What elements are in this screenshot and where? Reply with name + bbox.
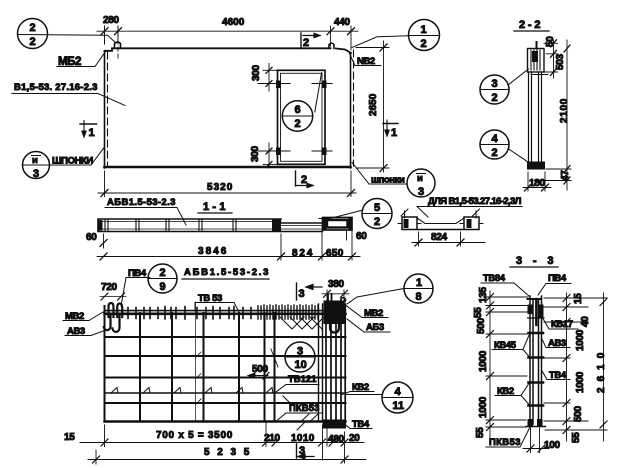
svg-text:650: 650 xyxy=(326,248,344,259)
svg-text:5: 5 xyxy=(374,202,380,214)
svg-text:503: 503 xyxy=(555,53,566,70)
svg-text:210: 210 xyxy=(264,433,281,444)
svg-text:2: 2 xyxy=(160,267,166,279)
svg-text:440: 440 xyxy=(334,17,351,28)
svg-text:500: 500 xyxy=(573,405,584,422)
svg-text:2: 2 xyxy=(303,37,309,49)
svg-text:ПВ4: ПВ4 xyxy=(548,273,567,284)
svg-text:КВ17: КВ17 xyxy=(551,319,573,330)
svg-text:47: 47 xyxy=(560,170,571,181)
svg-text:2: 2 xyxy=(30,36,36,48)
svg-text:9: 9 xyxy=(160,281,166,293)
svg-text:2650: 2650 xyxy=(368,93,379,116)
svg-text:1: 1 xyxy=(421,24,427,36)
svg-text:6: 6 xyxy=(295,104,301,116)
svg-text:и: и xyxy=(32,155,38,166)
svg-text:700 х 5 = 3500: 700 х 5 = 3500 xyxy=(156,430,233,441)
svg-text:1000: 1000 xyxy=(575,371,586,393)
svg-text:60: 60 xyxy=(86,232,97,243)
svg-text:1: 1 xyxy=(391,127,397,139)
svg-text:50: 50 xyxy=(545,36,556,47)
svg-text:2: 2 xyxy=(492,92,498,104)
svg-text:3846: 3846 xyxy=(198,246,227,257)
svg-text:60: 60 xyxy=(356,231,367,242)
svg-text:480: 480 xyxy=(328,434,345,445)
svg-text:40: 40 xyxy=(580,316,591,327)
svg-text:15: 15 xyxy=(573,293,584,304)
svg-text:1: 1 xyxy=(89,127,95,139)
svg-text:1010: 1010 xyxy=(291,433,315,444)
svg-text:В1,5-53. 27.16-2.3: В1,5-53. 27.16-2.3 xyxy=(14,82,97,93)
svg-text:3: 3 xyxy=(492,78,498,90)
svg-text:АБВ1.5-53-2.3: АБВ1.5-53-2.3 xyxy=(107,197,175,208)
svg-text:824: 824 xyxy=(431,232,448,243)
svg-text:ДЛЯ В1,5-53.27.16-2,3Л: ДЛЯ В1,5-53.27.16-2,3Л xyxy=(428,196,522,207)
svg-text:3: 3 xyxy=(299,288,305,300)
svg-text:824: 824 xyxy=(292,248,313,259)
svg-text:5320: 5320 xyxy=(207,182,233,193)
svg-text:3: 3 xyxy=(33,168,39,180)
svg-text:1: 1 xyxy=(416,277,422,289)
svg-text:3-3: 3-3 xyxy=(516,255,554,267)
svg-text:2: 2 xyxy=(295,118,301,130)
svg-text:15: 15 xyxy=(64,432,75,443)
svg-text:2: 2 xyxy=(492,147,498,159)
svg-text:1-1: 1-1 xyxy=(203,201,226,213)
svg-text:2: 2 xyxy=(374,216,380,228)
svg-text:55: 55 xyxy=(475,427,486,438)
svg-text:3: 3 xyxy=(297,346,303,358)
svg-text:300: 300 xyxy=(251,64,262,81)
svg-text:720: 720 xyxy=(101,282,118,293)
svg-text:2-2: 2-2 xyxy=(519,19,541,31)
svg-text:280: 280 xyxy=(103,15,120,26)
svg-text:1000: 1000 xyxy=(575,329,586,351)
svg-text:1000: 1000 xyxy=(478,350,489,372)
svg-text:3: 3 xyxy=(418,186,424,198)
svg-text:АБ3: АБ3 xyxy=(366,322,384,333)
svg-text:ТВ121: ТВ121 xyxy=(288,374,317,385)
svg-text:2: 2 xyxy=(30,22,36,34)
svg-text:1000: 1000 xyxy=(478,396,489,418)
svg-text:20: 20 xyxy=(349,433,360,444)
svg-text:ТВ84: ТВ84 xyxy=(483,273,506,284)
svg-text:ПКВ53: ПКВ53 xyxy=(489,437,520,448)
svg-text:55: 55 xyxy=(473,307,484,318)
svg-text:10: 10 xyxy=(295,359,307,371)
svg-text:2100: 2100 xyxy=(559,98,570,123)
svg-text:4: 4 xyxy=(492,133,499,145)
svg-text:380: 380 xyxy=(328,279,345,290)
svg-text:135: 135 xyxy=(478,286,489,303)
svg-text:ПКВ53: ПКВ53 xyxy=(289,403,319,414)
svg-text:300: 300 xyxy=(250,145,261,162)
svg-text:8: 8 xyxy=(416,291,422,303)
svg-text:2: 2 xyxy=(421,38,427,50)
svg-text:180: 180 xyxy=(529,178,546,189)
svg-text:500: 500 xyxy=(476,317,487,334)
svg-text:4: 4 xyxy=(395,386,402,398)
svg-text:и: и xyxy=(417,173,423,184)
svg-text:2: 2 xyxy=(301,174,307,186)
svg-text:4600: 4600 xyxy=(222,17,245,28)
svg-text:11: 11 xyxy=(393,400,405,412)
svg-text:55: 55 xyxy=(571,432,582,443)
svg-text:100: 100 xyxy=(544,440,561,451)
